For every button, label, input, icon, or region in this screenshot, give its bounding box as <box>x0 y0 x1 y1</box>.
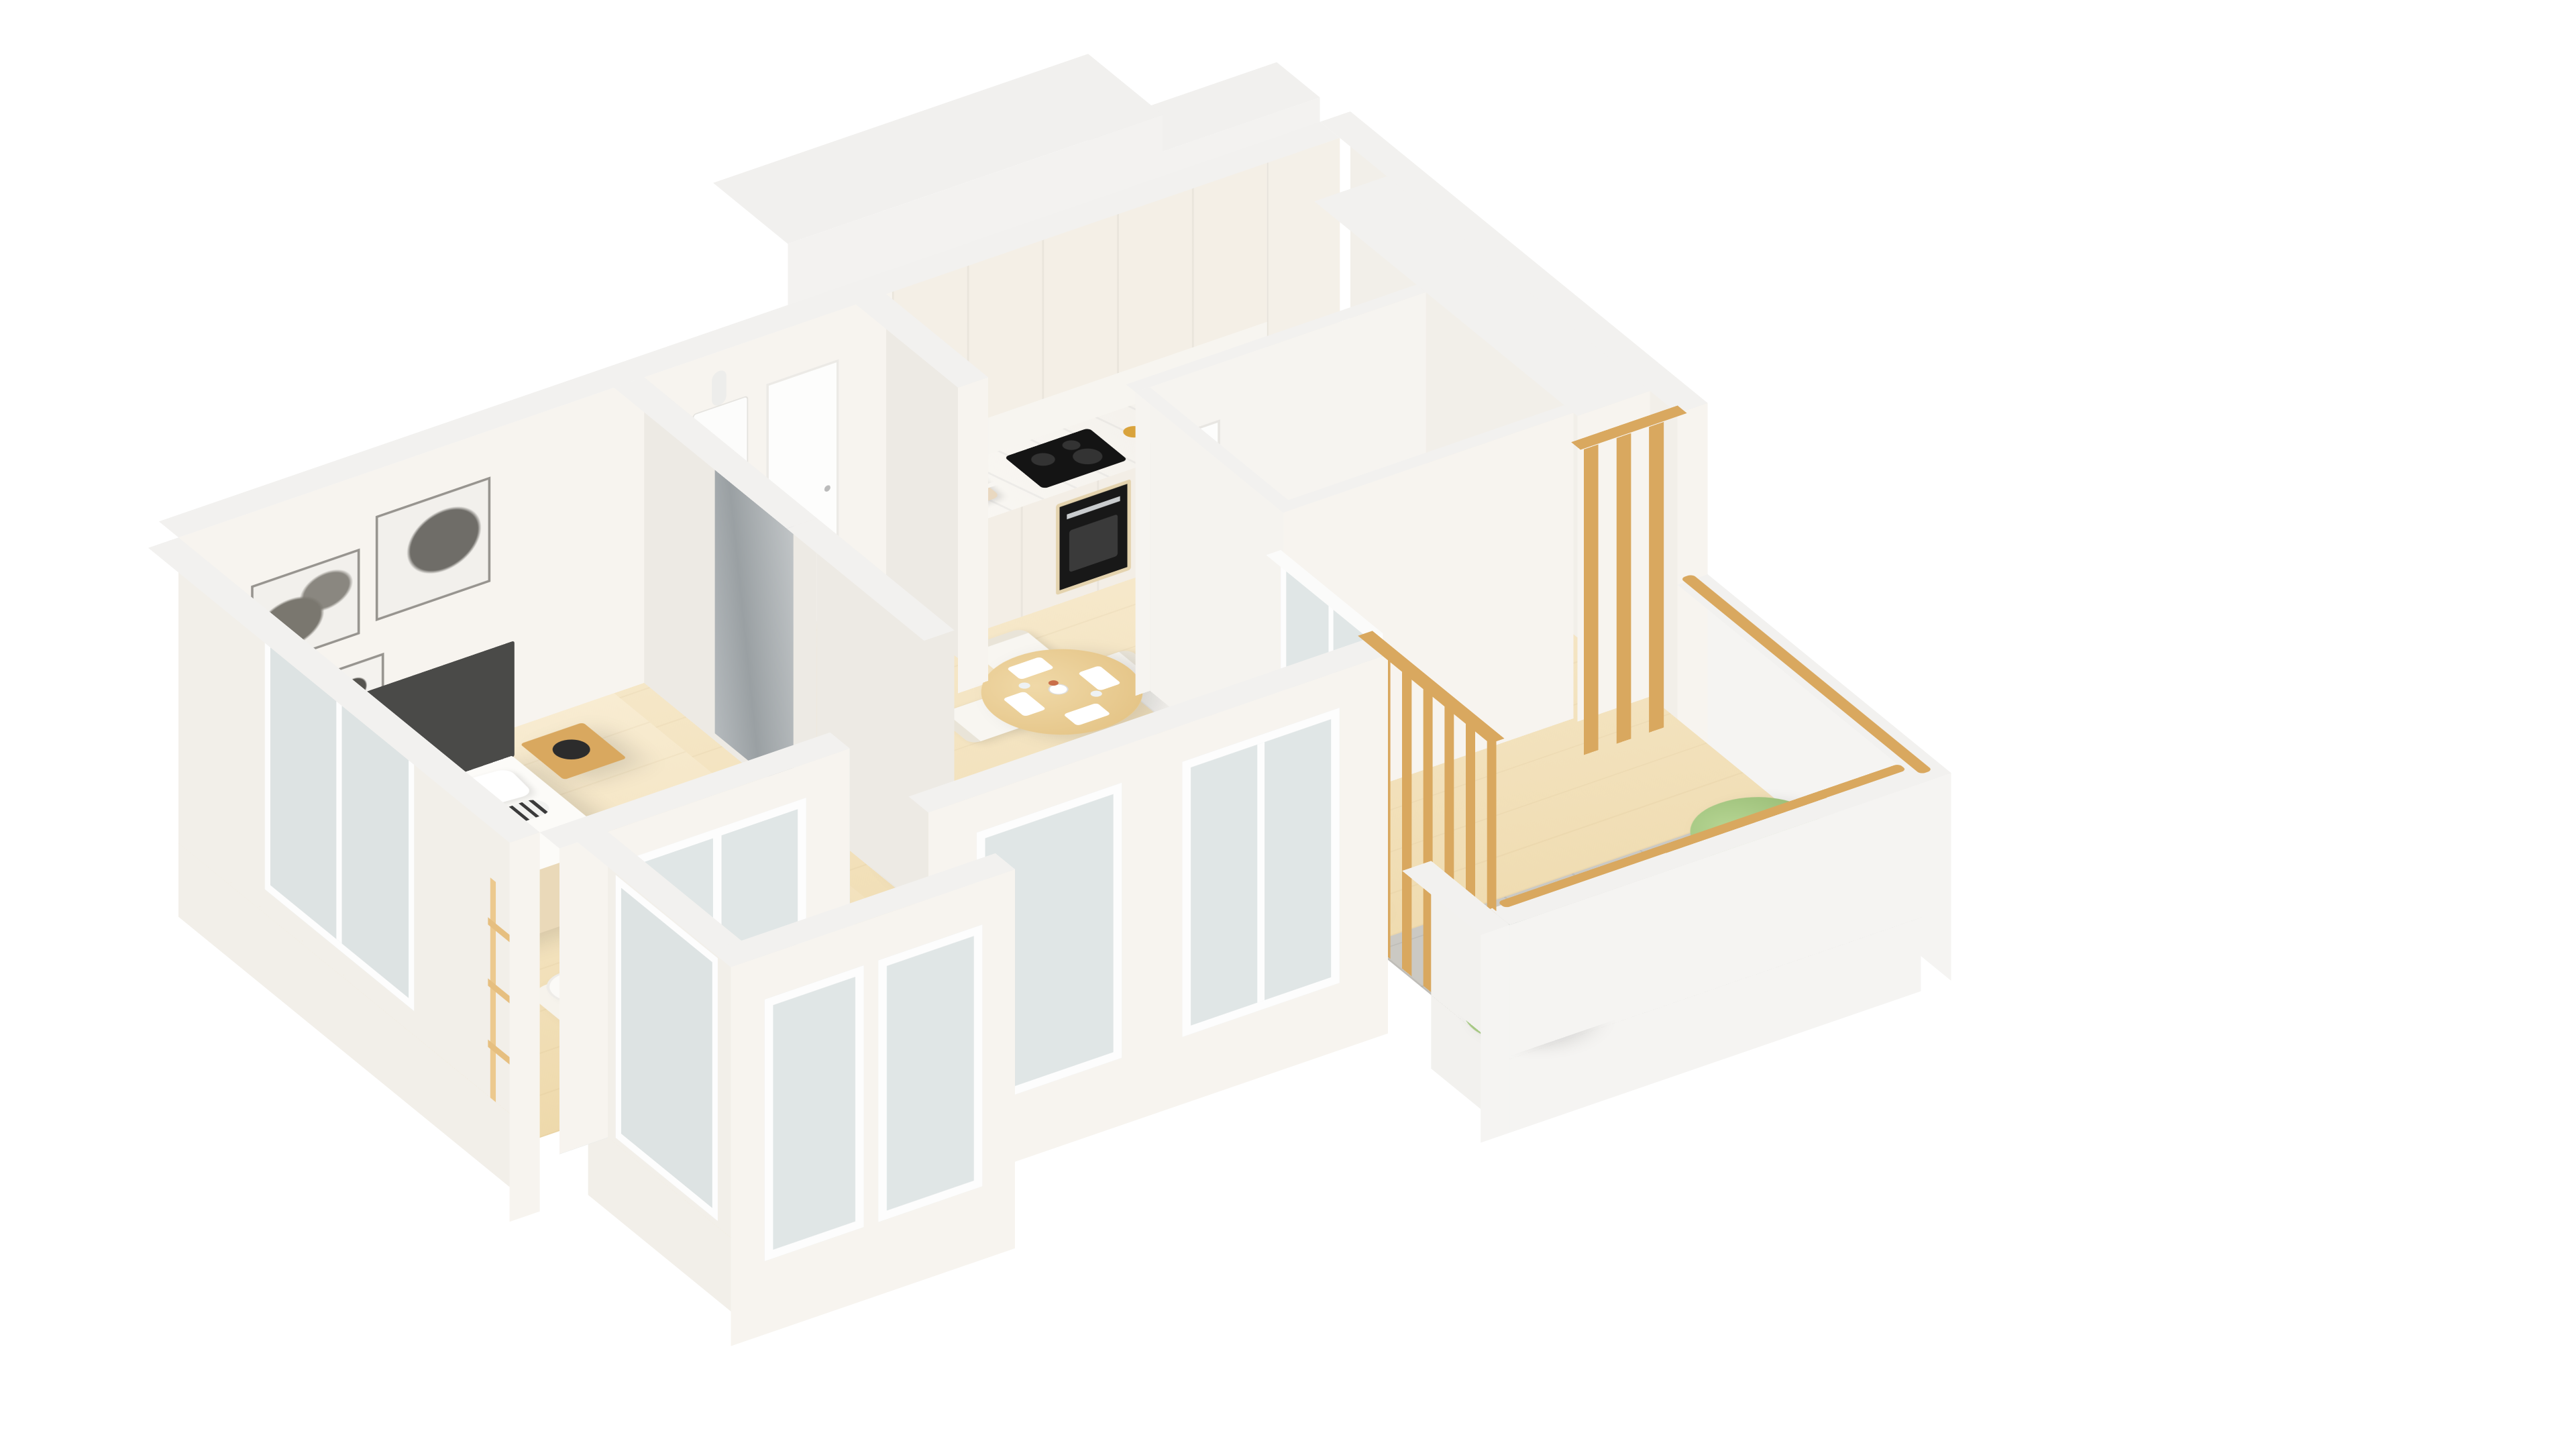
apartment-3d-scene <box>178 443 1921 1318</box>
living-window-2 <box>1182 708 1339 1037</box>
parapet-terrace-left-end <box>1481 925 1509 1143</box>
oven-window <box>1069 514 1118 572</box>
wall-kitchen-return-end <box>958 377 988 693</box>
slat-screen-right <box>1584 416 1680 755</box>
living-window-2-mullion <box>1257 742 1265 1002</box>
wall-bedroom-left-end <box>510 833 540 1222</box>
loggia-window-1 <box>765 965 864 1261</box>
loggia-window-2 <box>878 924 982 1222</box>
wall-art-large <box>376 476 490 621</box>
window-mullion <box>336 699 341 943</box>
boiler-pipe <box>712 368 727 407</box>
built-in-oven <box>1056 479 1131 595</box>
